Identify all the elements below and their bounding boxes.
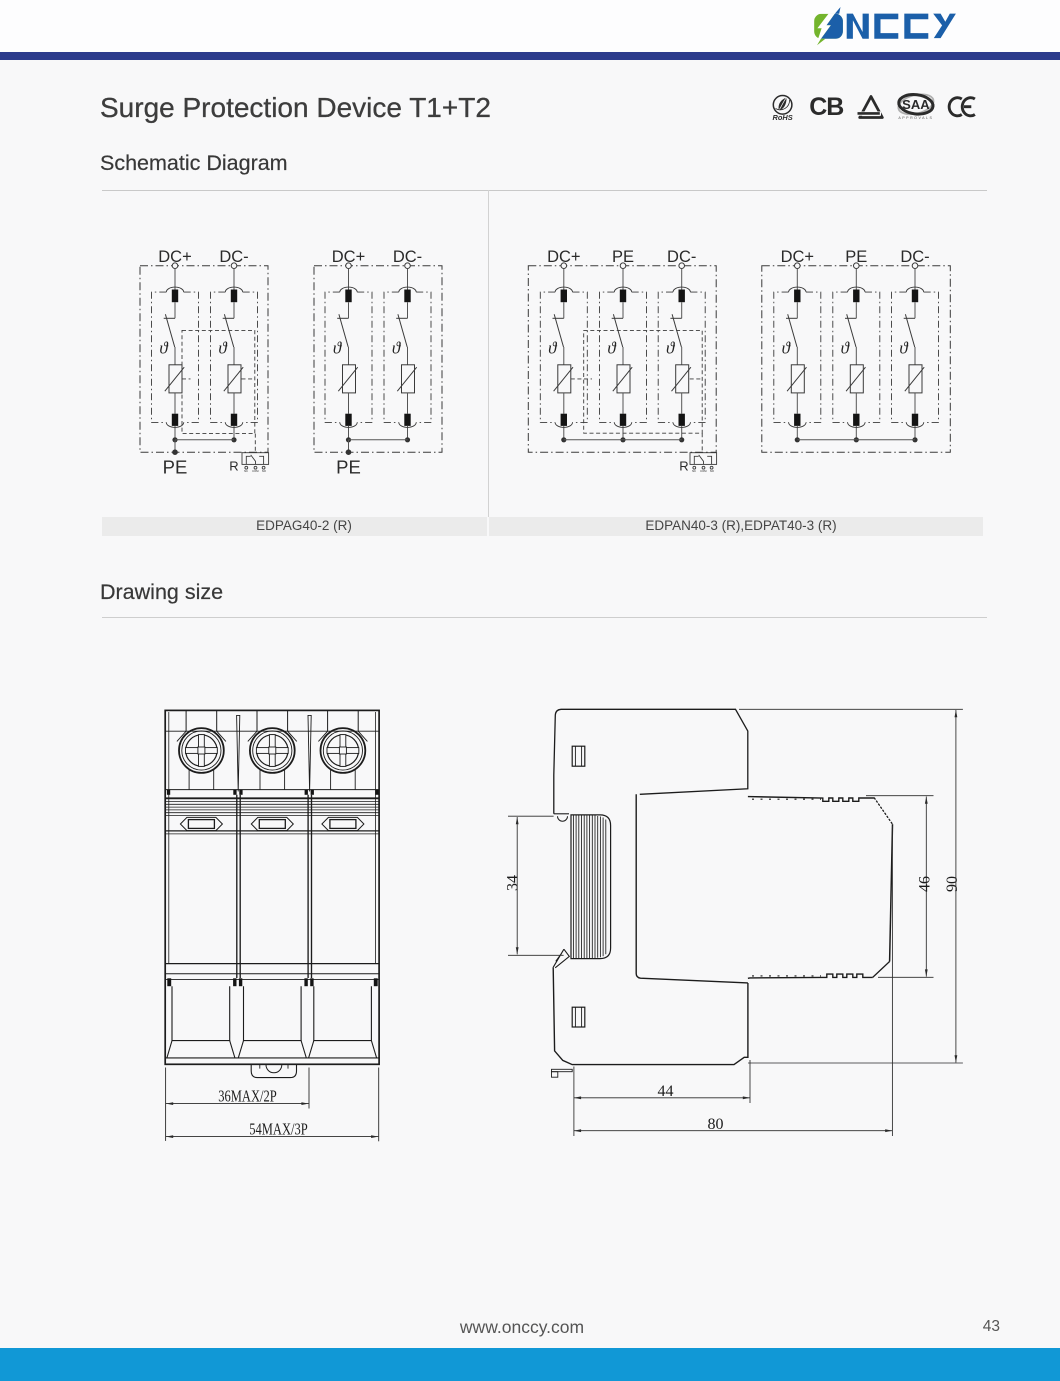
svg-text:DC-: DC- xyxy=(393,248,422,266)
svg-text:APPROVALS: APPROVALS xyxy=(898,116,933,120)
svg-text:RoHS: RoHS xyxy=(773,113,793,122)
svg-text:46: 46 xyxy=(917,876,934,892)
svg-text:PE: PE xyxy=(612,248,634,266)
svg-text:90: 90 xyxy=(944,876,961,892)
svg-text:PE: PE xyxy=(336,457,361,478)
svg-text:36MAX/2P: 36MAX/2P xyxy=(218,1088,276,1106)
svg-text:DC+: DC+ xyxy=(158,248,191,266)
svg-text:SAA: SAA xyxy=(902,97,930,112)
svg-text:PE: PE xyxy=(163,457,188,478)
svg-text:34: 34 xyxy=(505,875,522,891)
svg-text:DC-: DC- xyxy=(219,248,248,266)
svg-text:R: R xyxy=(229,459,238,474)
svg-text:DC+: DC+ xyxy=(332,248,365,266)
svg-text:PE: PE xyxy=(845,248,867,266)
svg-text:CB: CB xyxy=(809,93,843,121)
svg-text:R: R xyxy=(679,459,688,474)
svg-text:44: 44 xyxy=(658,1083,674,1100)
svg-text:DC-: DC- xyxy=(900,248,929,266)
svg-text:DC+: DC+ xyxy=(547,248,580,266)
svg-text:54MAX/3P: 54MAX/3P xyxy=(249,1121,307,1139)
svg-text:80: 80 xyxy=(708,1116,724,1133)
svg-text:DC-: DC- xyxy=(667,248,696,266)
svg-text:DC+: DC+ xyxy=(781,248,814,266)
